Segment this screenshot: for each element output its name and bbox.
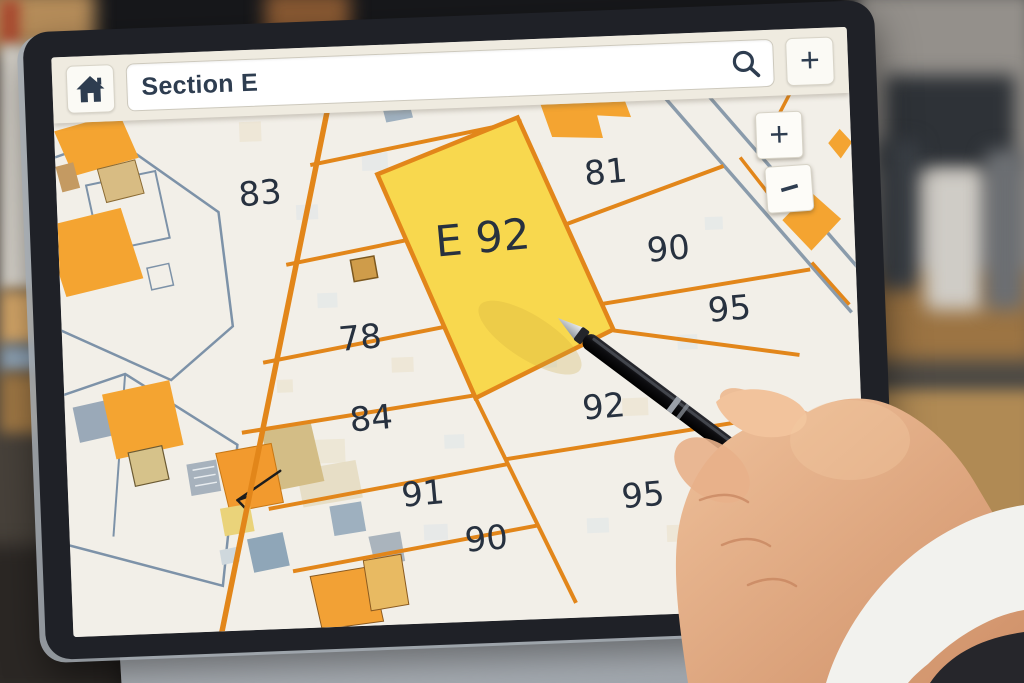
parcel-label[interactable]: 92 (581, 385, 627, 428)
pen-cup (925, 170, 983, 310)
parcel-label[interactable]: 81 (582, 151, 628, 194)
parcel-label[interactable]: 95 (620, 474, 666, 517)
parcel-label-highlighted[interactable]: E 92 (433, 209, 532, 267)
background-red-item (0, 0, 20, 45)
parcel-label[interactable]: 78 (337, 316, 383, 359)
parcel-label[interactable]: 90 (645, 227, 691, 270)
parcel-label[interactable]: 84 (348, 397, 394, 440)
pen-cup (985, 150, 1024, 310)
pen-cup (878, 140, 920, 290)
parcel-map[interactable]: 83 81 E 92 90 95 78 84 92 91 90 95 (54, 93, 869, 637)
minus-icon: − (774, 167, 804, 210)
zoom-out-button[interactable]: − (764, 164, 814, 214)
parcel-label[interactable]: 91 (400, 472, 446, 515)
parcel-label[interactable]: 83 (237, 172, 283, 215)
search-icon[interactable] (730, 48, 761, 79)
map-area[interactable]: 83 81 E 92 90 95 78 84 92 91 90 95 + (54, 93, 869, 637)
plus-icon: + (769, 115, 790, 155)
app-screen: + (51, 27, 869, 637)
add-icon: + (799, 43, 820, 78)
home-icon (75, 74, 106, 103)
zoom-in-button[interactable]: + (755, 111, 804, 160)
building-square (350, 256, 377, 282)
scene: + (0, 0, 1024, 683)
add-button[interactable]: + (785, 36, 835, 86)
home-button[interactable] (66, 64, 116, 114)
parcel-label[interactable]: 95 (706, 287, 752, 330)
monitor: + (22, 0, 897, 660)
parcel-label[interactable]: 90 (463, 517, 509, 560)
search-input[interactable] (127, 50, 732, 102)
